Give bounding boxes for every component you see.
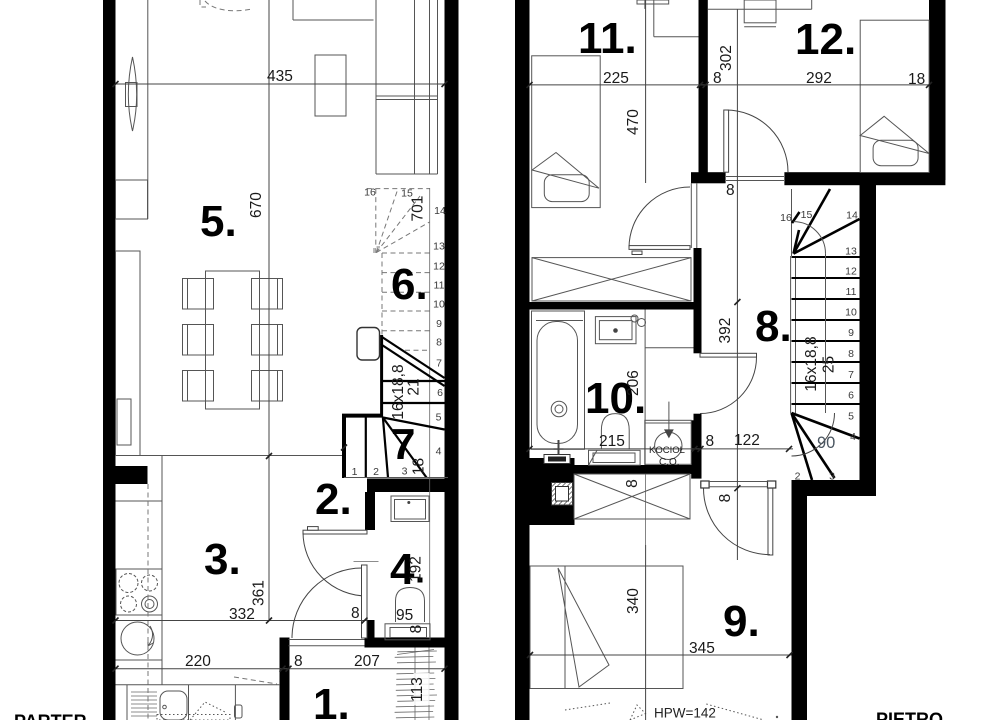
svg-text:KOCIOŁ: KOCIOŁ — [649, 445, 685, 456]
svg-text:9.: 9. — [723, 597, 760, 646]
svg-text:4: 4 — [850, 431, 856, 443]
svg-text:215: 215 — [599, 433, 625, 450]
svg-text:95: 95 — [396, 607, 413, 624]
svg-text:8: 8 — [848, 348, 854, 360]
svg-text:8: 8 — [713, 70, 722, 87]
svg-text:3: 3 — [402, 466, 408, 478]
svg-text:10: 10 — [433, 299, 445, 311]
svg-text:8: 8 — [351, 605, 360, 622]
svg-text:11: 11 — [434, 280, 445, 292]
svg-text:15: 15 — [801, 209, 813, 221]
svg-text:1: 1 — [352, 466, 358, 478]
svg-text:8: 8 — [624, 479, 641, 488]
svg-text:207: 207 — [354, 653, 380, 670]
svg-text:1.: 1. — [313, 680, 350, 720]
svg-text:220: 220 — [185, 653, 211, 670]
svg-text:9: 9 — [848, 327, 854, 339]
svg-text:16x18,8: 16x18,8 — [390, 364, 407, 419]
svg-text:8: 8 — [408, 625, 425, 634]
svg-text:11: 11 — [846, 286, 857, 298]
svg-text:16: 16 — [780, 212, 792, 224]
svg-text:122: 122 — [734, 432, 760, 449]
svg-text:6: 6 — [848, 390, 854, 402]
svg-text:HPW=142: HPW=142 — [654, 706, 716, 720]
svg-text:3: 3 — [829, 471, 835, 483]
svg-text:10: 10 — [845, 307, 857, 319]
svg-text:5: 5 — [436, 412, 442, 424]
svg-text:435: 435 — [267, 68, 293, 85]
svg-text:292: 292 — [806, 70, 832, 87]
svg-text:18: 18 — [908, 71, 925, 88]
svg-text:302: 302 — [718, 45, 735, 71]
svg-text:6: 6 — [437, 387, 443, 399]
svg-text:8: 8 — [717, 494, 734, 503]
svg-text:332: 332 — [229, 606, 255, 623]
svg-text:90: 90 — [817, 434, 835, 452]
svg-text:14: 14 — [846, 210, 858, 222]
svg-text:13: 13 — [433, 241, 445, 253]
svg-text:PARTER: PARTER — [14, 712, 87, 720]
svg-text:113: 113 — [409, 677, 426, 702]
svg-text:340: 340 — [625, 588, 642, 614]
svg-text:361: 361 — [251, 580, 268, 606]
svg-text:8: 8 — [436, 337, 442, 349]
svg-text:392: 392 — [717, 318, 734, 344]
svg-text:PIĘTRO: PIĘTRO — [876, 710, 943, 720]
svg-text:5.: 5. — [200, 197, 237, 246]
svg-text:25: 25 — [821, 356, 838, 373]
svg-text:8: 8 — [294, 653, 303, 670]
svg-text:18: 18 — [411, 458, 428, 475]
svg-text:470: 470 — [625, 109, 642, 135]
svg-text:2: 2 — [795, 471, 801, 483]
svg-text:206: 206 — [625, 370, 642, 396]
svg-text:5: 5 — [848, 411, 854, 423]
svg-text:192: 192 — [408, 556, 425, 582]
svg-text:9: 9 — [436, 318, 442, 330]
svg-text:6.: 6. — [391, 260, 428, 309]
svg-text:21: 21 — [406, 378, 423, 395]
svg-text:13: 13 — [845, 246, 857, 258]
svg-text:2: 2 — [373, 466, 379, 478]
svg-text:12.: 12. — [795, 15, 856, 64]
svg-text:14: 14 — [434, 205, 446, 217]
svg-text:12: 12 — [845, 266, 857, 278]
svg-text:8: 8 — [726, 182, 735, 199]
svg-text:3.: 3. — [204, 535, 241, 584]
svg-text:15: 15 — [401, 188, 413, 200]
svg-text:225: 225 — [603, 70, 629, 87]
svg-text:16: 16 — [364, 187, 376, 199]
svg-text:670: 670 — [248, 192, 265, 218]
svg-text:11.: 11. — [578, 14, 637, 63]
svg-text:C.O.: C.O. — [659, 457, 680, 468]
svg-text:2.: 2. — [315, 475, 352, 524]
svg-text:8.: 8. — [755, 302, 792, 351]
svg-text:7: 7 — [848, 369, 854, 381]
svg-text:16x18,8: 16x18,8 — [803, 336, 820, 391]
svg-text:345: 345 — [689, 640, 715, 657]
svg-text:4: 4 — [436, 446, 442, 458]
svg-text:12: 12 — [433, 261, 445, 273]
svg-text:8: 8 — [706, 433, 715, 450]
svg-text:7: 7 — [436, 358, 442, 370]
